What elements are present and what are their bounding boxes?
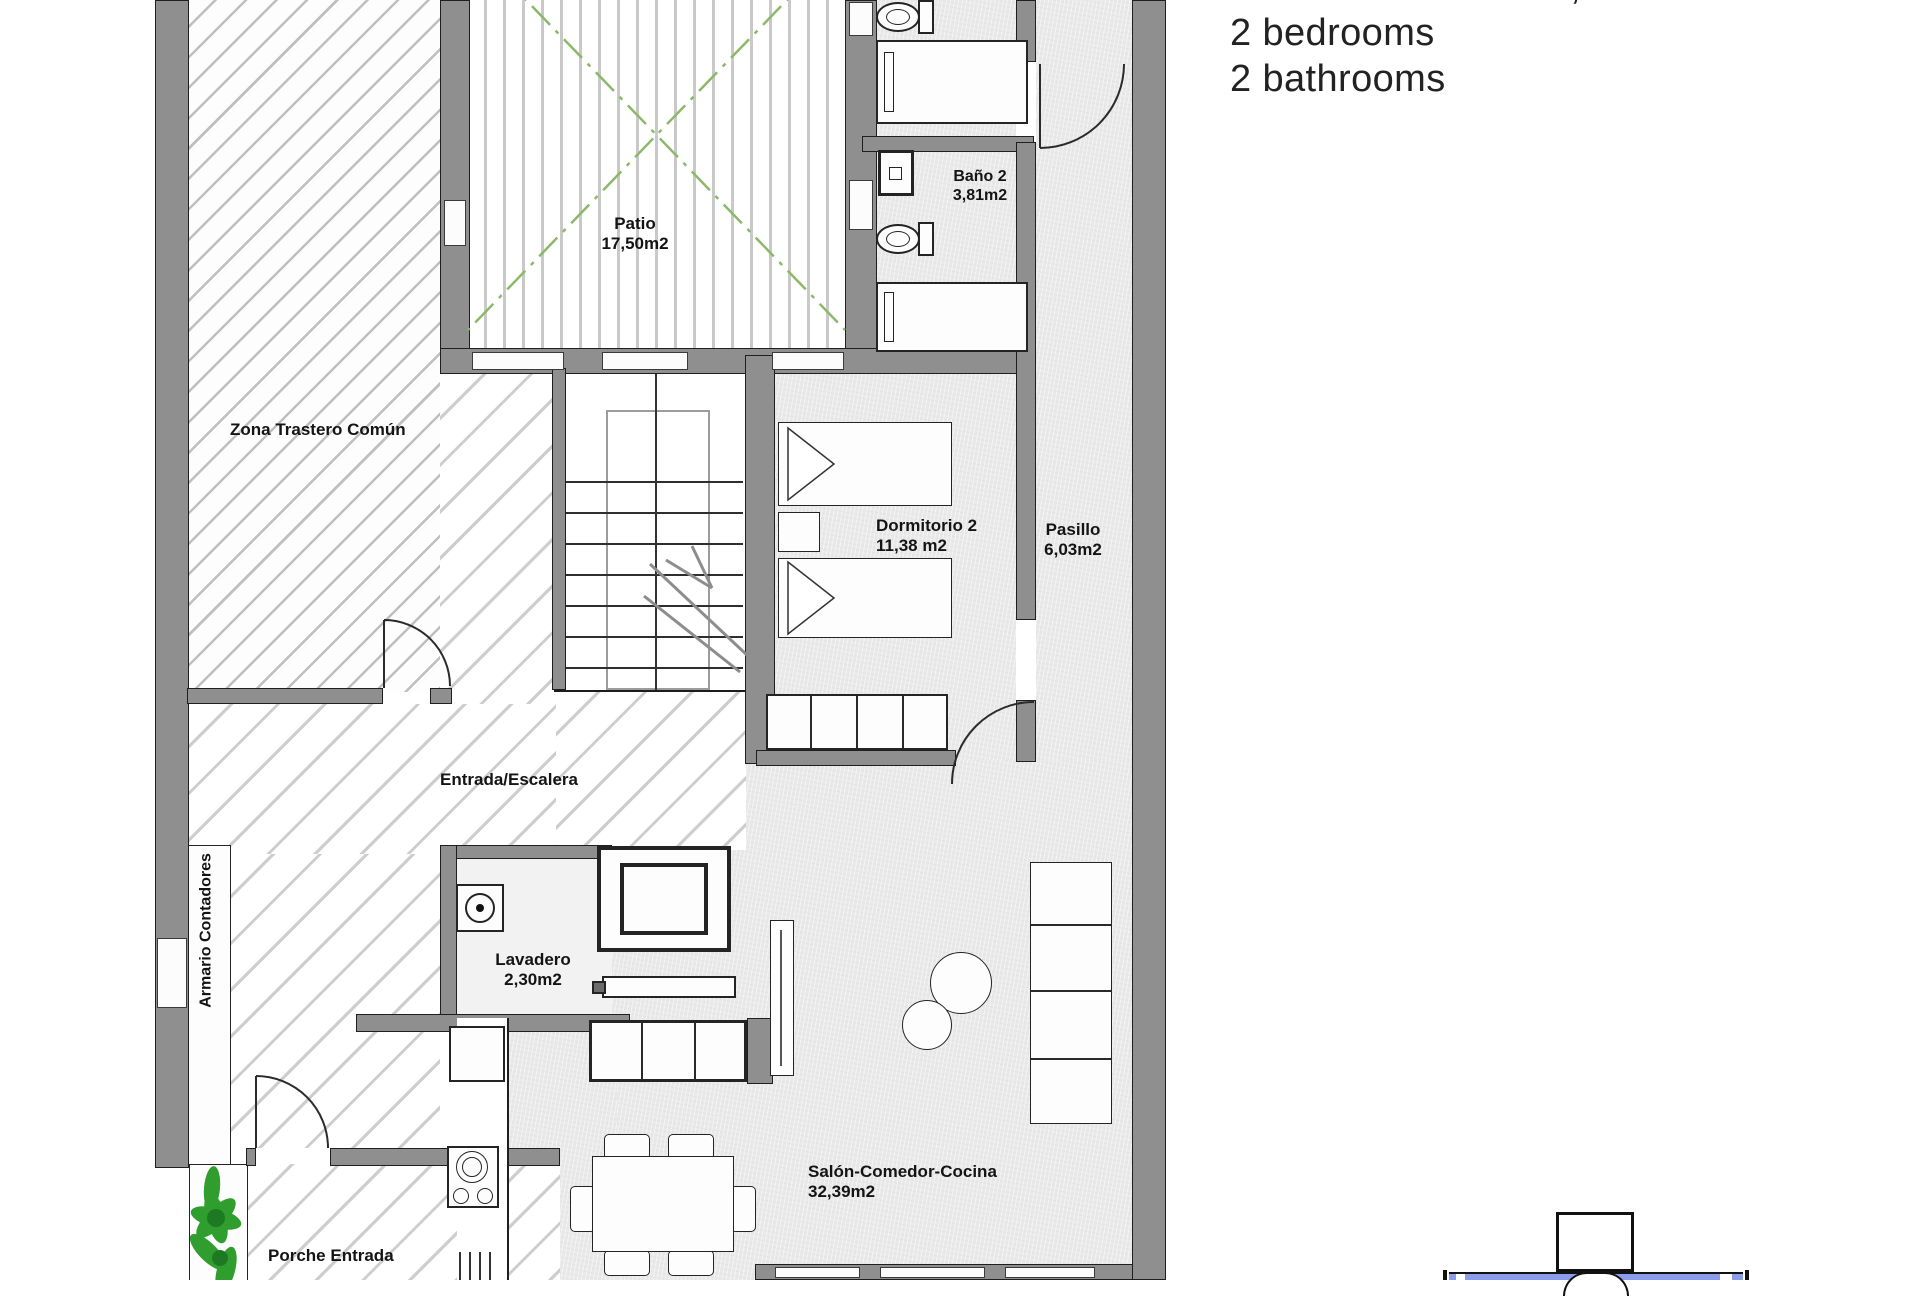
shower-screen: [884, 292, 894, 342]
toilet-cistern: [918, 222, 934, 256]
room-zona-trastero: [187, 0, 440, 692]
shower-fixture: [876, 40, 1028, 124]
wardrobe-divider: [810, 696, 812, 748]
site-plan-curve: [1563, 1272, 1629, 1296]
wall: [756, 750, 956, 766]
shower-screen: [884, 52, 894, 112]
room-area: 11,38 m2: [876, 536, 977, 556]
room-name: Pasillo: [1028, 520, 1118, 540]
island-divider: [641, 1022, 643, 1080]
sofa-cushion-line: [1031, 1058, 1111, 1060]
porch-side-strip: [189, 1164, 248, 1280]
toilet-fixture: [886, 9, 910, 25]
sofa-cushion-line: [1031, 990, 1111, 992]
summary-bedrooms: 2 bedrooms: [1230, 12, 1435, 55]
wall-right-exterior: [1132, 0, 1166, 1280]
bed-fixture: [778, 558, 952, 638]
room-name: Armario Contadores: [198, 853, 215, 1008]
wardrobe-divider: [902, 696, 904, 748]
window: [772, 352, 844, 370]
chair-fixture: [604, 1250, 650, 1276]
cabinet-line: [479, 1252, 481, 1280]
toilet-cistern: [918, 0, 934, 34]
room-label-porche: Porche Entrada: [268, 1246, 394, 1266]
island-divider: [694, 1022, 696, 1080]
stove-burner: [453, 1188, 469, 1204]
room-label-patio: Patio 17,50m2: [560, 214, 710, 254]
summary-bathrooms: 2 bathrooms: [1230, 58, 1446, 101]
counter-fixture: [602, 976, 736, 998]
wall: [330, 1148, 560, 1166]
tv-unit-fixture: [770, 920, 794, 1076]
kitchen-island-fixture: [589, 1020, 747, 1082]
room-label-zona-trastero: Zona Trastero Común: [230, 420, 406, 440]
wall: [845, 0, 877, 352]
room-name: Salón-Comedor-Cocina: [808, 1162, 997, 1182]
room-label-armario: Armario Contadores: [198, 770, 217, 1090]
tv-unit-line: [780, 930, 782, 1066]
room-label-entrada: Entrada/Escalera: [440, 770, 578, 790]
wall: [246, 1148, 256, 1166]
cabinet-line: [489, 1252, 491, 1280]
coffee-table-fixture: [902, 1000, 952, 1050]
room-name: Zona Trastero Común: [230, 420, 406, 439]
dining-table-fixture: [592, 1156, 734, 1252]
room-label-bano2: Baño 2 3,81m2: [920, 168, 1040, 206]
room-name: Porche Entrada: [268, 1246, 394, 1265]
elevator-car: [620, 863, 708, 935]
sofa-cushion-line: [1031, 924, 1111, 926]
cabinet: [1005, 1267, 1095, 1278]
cabinet: [880, 1267, 985, 1278]
stove-burner: [462, 1157, 482, 1177]
washing-machine-knob: [476, 904, 484, 912]
room-name: Patio: [560, 214, 710, 234]
washbasin-drain: [889, 167, 902, 180]
stair-divider: [655, 368, 657, 690]
room-label-dormitorio2: Dormitorio 2 11,38 m2: [876, 516, 977, 556]
wall: [552, 368, 566, 690]
cabinet: [775, 1267, 860, 1278]
wall: [440, 0, 470, 352]
wall: [440, 845, 457, 1017]
room-name: Baño 2: [920, 168, 1040, 187]
wall: [1016, 700, 1036, 762]
site-plan-edge: [1443, 1270, 1447, 1280]
floor-plan: Patio 17,50m2 Baño 2 3,81m2 Zona Traster…: [0, 0, 1920, 1280]
window: [602, 352, 688, 370]
window: [849, 2, 873, 36]
sofa-fixture: [1030, 862, 1112, 1124]
wall: [440, 845, 612, 859]
room-area: 2,30m2: [468, 970, 598, 990]
shower-fixture: [876, 282, 1028, 352]
room-label-lavadero: Lavadero 2,30m2: [468, 950, 598, 990]
wardrobe-divider: [856, 696, 858, 748]
room-name: Lavadero: [468, 950, 598, 970]
site-plan-gap: [1720, 1274, 1732, 1280]
summary-total-area-clipped: Total built area: 101,45m2: [1230, 0, 1678, 9]
room-lavadero: [457, 859, 612, 1014]
room-entrada: [440, 374, 552, 704]
room-entrada: [229, 854, 440, 1148]
window: [849, 180, 873, 230]
room-area: 6,03m2: [1028, 540, 1118, 560]
wall: [187, 688, 383, 704]
room-area: 32,39m2: [808, 1182, 997, 1202]
window: [444, 200, 466, 246]
room-name: Dormitorio 2: [876, 516, 977, 536]
site-plan-block: [1556, 1212, 1634, 1272]
chair-fixture: [668, 1250, 714, 1276]
room-area: 3,81m2: [920, 187, 1040, 206]
nightstand-fixture: [778, 512, 820, 552]
sink-fixture: [449, 1026, 505, 1082]
site-plan-gap: [1456, 1274, 1465, 1280]
room-label-salon: Salón-Comedor-Cocina 32,39m2: [808, 1162, 997, 1202]
room-pasillo: [1036, 0, 1132, 764]
room-label-pasillo: Pasillo 6,03m2: [1028, 520, 1118, 560]
room-entrada: [556, 690, 746, 850]
bed-fixture: [778, 422, 952, 506]
stair-treads: [558, 452, 743, 690]
cabinet-line: [459, 1252, 461, 1280]
room-name: Entrada/Escalera: [440, 770, 578, 789]
wall: [430, 688, 452, 704]
cabinet-line: [469, 1252, 471, 1280]
toilet-fixture: [886, 231, 910, 247]
entrance-door-opening: [157, 938, 187, 1008]
window: [472, 352, 564, 370]
site-plan-edge: [1745, 1270, 1749, 1280]
room-patio: [468, 0, 845, 350]
room-area: 17,50m2: [560, 234, 710, 254]
stove-burner: [477, 1188, 493, 1204]
